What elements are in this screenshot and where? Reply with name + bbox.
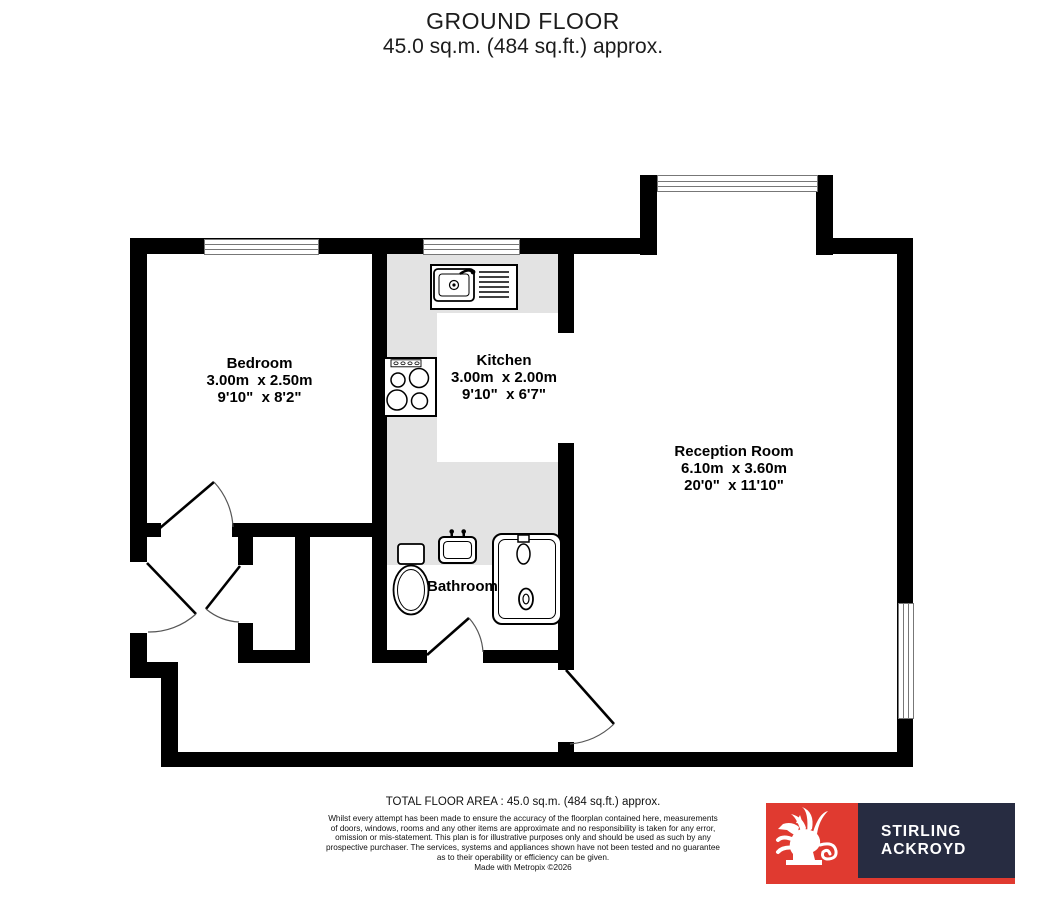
- logo-name-line1: STIRLING: [881, 823, 1015, 841]
- logo-name-panel: STIRLING ACKROYD: [858, 803, 1015, 878]
- door-leaf: [147, 482, 614, 724]
- floorplan: Bedroom 3.00m x 2.50m 9'10" x 8'2" Kitch…: [0, 0, 1046, 900]
- logo-red-panel: [766, 803, 858, 878]
- griffin-icon: [766, 803, 858, 878]
- logo-red-strip: [766, 878, 1015, 884]
- room-label-reception: Reception Room 6.10m x 3.60m 20'0" x 11'…: [594, 443, 874, 494]
- room-label-kitchen: Kitchen 3.00m x 2.00m 9'10" x 6'7": [404, 352, 604, 403]
- room-label-bathroom: Bathroom: [427, 578, 498, 595]
- logo-name-line2: ACKROYD: [881, 841, 1015, 859]
- door-arc: [148, 482, 614, 744]
- stirling-ackroyd-logo: STIRLING ACKROYD: [766, 803, 1015, 884]
- door-swings-layer: [0, 0, 1046, 900]
- room-label-bedroom: Bedroom 3.00m x 2.50m 9'10" x 8'2": [147, 355, 372, 406]
